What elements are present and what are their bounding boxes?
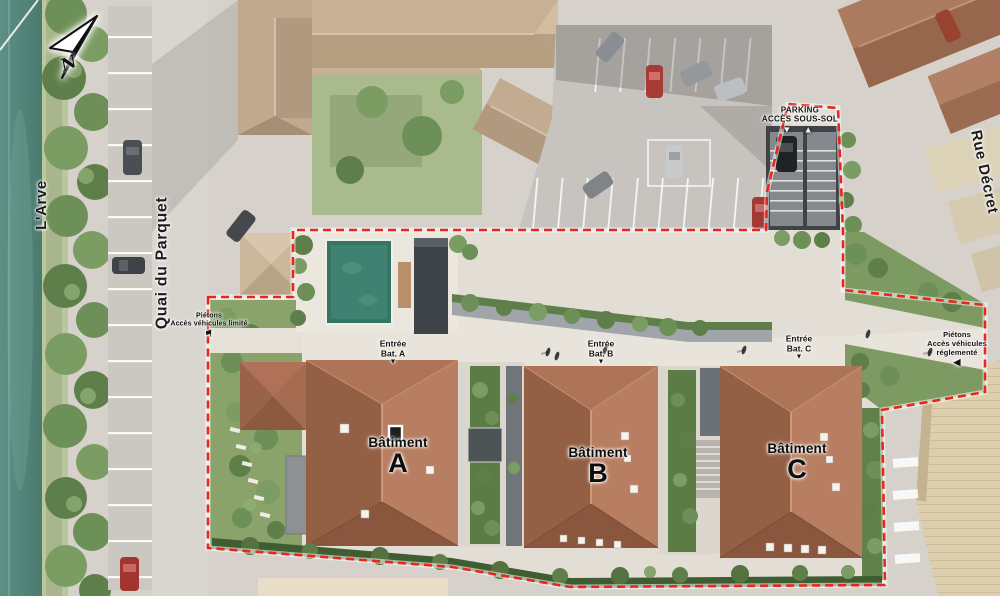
access-west-label: Piétons Accès véhicules limité ⚑: [171, 312, 248, 338]
building-a-letter: A: [368, 451, 427, 477]
entrance-a-line2: Bat. A: [380, 349, 406, 359]
entrance-a-label: Entrée Bat. A ▼: [380, 338, 406, 365]
building-b-label: Bâtiment B: [568, 445, 627, 487]
entrance-b-line2: Bat. B: [588, 349, 614, 359]
entrance-c-line2: Bat. C: [786, 344, 812, 354]
entrance-b-label: Entrée Bat. B ▼: [588, 338, 614, 365]
courtyard-b-c: [658, 366, 722, 554]
access-west-line1: Piétons: [171, 312, 248, 320]
pool-area: [290, 232, 478, 334]
entrance-c-line1: Entrée: [786, 333, 812, 343]
pool-house: [414, 238, 448, 334]
entrance-c-label: Entrée Bat. C ▼: [786, 333, 812, 360]
street-parking-west: [108, 6, 152, 590]
courtyard-a-b: [458, 362, 524, 546]
exterior-stairs: [696, 440, 722, 498]
parking-access-label: PARKING ACCÈS SOUS-SOL ▼ ▲: [762, 105, 838, 134]
entrance-b-arrow-icon: ▼: [588, 359, 614, 366]
building-c-label: Bâtiment C: [767, 441, 826, 483]
site-plan-rendering: N L'Arve Quai du Parquet Rue Décret PARK…: [0, 0, 1000, 596]
entrance-c-arrow-icon: ▼: [786, 354, 812, 361]
parking-lot-north: [518, 25, 772, 232]
existing-building-south: [258, 578, 448, 596]
river-label: L'Arve: [33, 180, 51, 230]
entrance-a-line1: Entrée: [380, 338, 406, 348]
building-c-letter: C: [767, 457, 826, 483]
entrance-a-arrow-icon: ▼: [380, 359, 406, 366]
access-east-arrow-icon: ◀: [927, 358, 987, 367]
building-b-letter: B: [568, 461, 627, 487]
skylight-panel: [468, 428, 502, 462]
aerial-render: [0, 0, 1000, 596]
access-east-label: Piétons Accès véhicules réglementé ◀: [927, 331, 987, 367]
ramp-up-down-icon: ▼ ▲: [762, 124, 838, 135]
building-a-label: Bâtiment A: [368, 435, 427, 477]
street-label-quai-du-parquet: Quai du Parquet: [154, 197, 173, 330]
parking-access-line2: ACCÈS SOUS-SOL: [762, 115, 838, 124]
access-flag-icon: ⚑: [205, 329, 213, 338]
wood-lounge-deck: [398, 262, 411, 308]
river-arve: [0, 0, 46, 596]
entrance-b-line1: Entrée: [588, 338, 614, 348]
